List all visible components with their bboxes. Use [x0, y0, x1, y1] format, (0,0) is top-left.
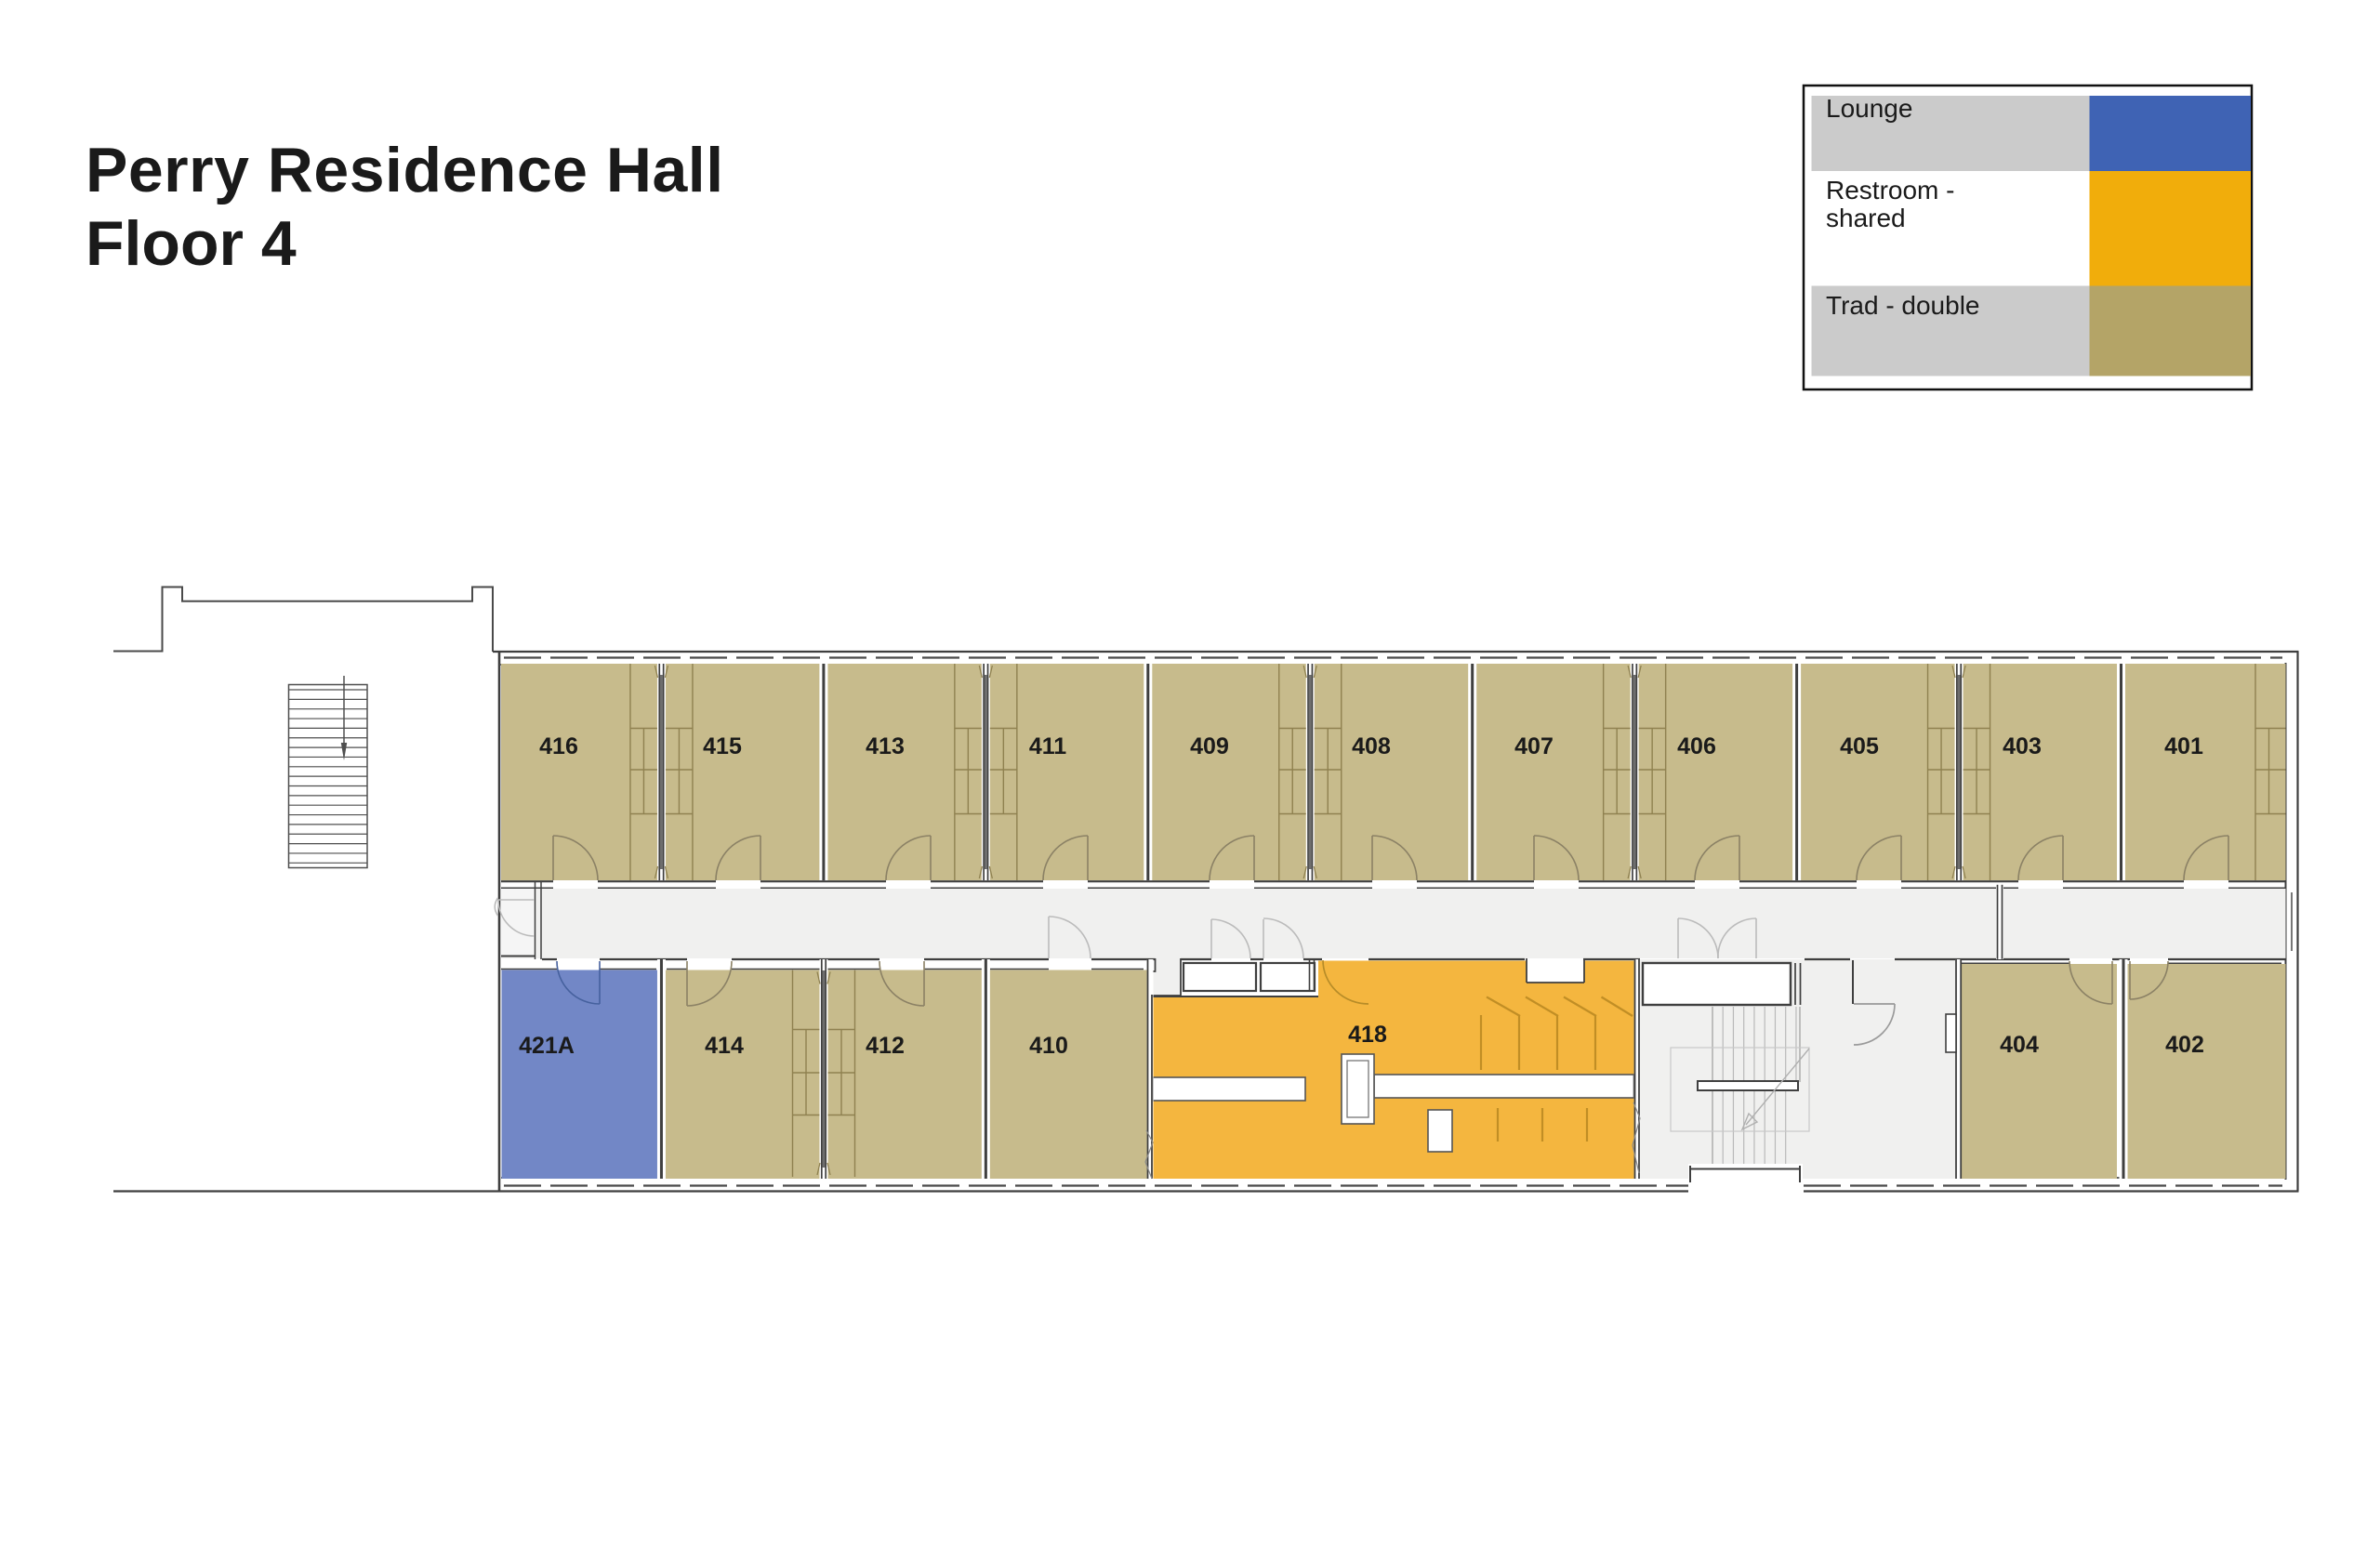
svg-text:Floor 4: Floor 4: [86, 208, 297, 279]
svg-text:412: 412: [866, 1033, 905, 1059]
svg-text:Lounge: Lounge: [1826, 94, 1912, 123]
svg-text:407: 407: [1514, 733, 1554, 759]
svg-text:408: 408: [1352, 733, 1391, 759]
svg-text:Trad - double: Trad - double: [1826, 291, 1980, 320]
svg-text:409: 409: [1190, 733, 1229, 759]
svg-text:shared: shared: [1826, 204, 1906, 232]
svg-text:410: 410: [1029, 1033, 1068, 1059]
svg-text:405: 405: [1840, 733, 1879, 759]
svg-text:413: 413: [866, 733, 905, 759]
svg-text:Perry Residence Hall: Perry Residence Hall: [86, 135, 724, 205]
svg-text:406: 406: [1677, 733, 1716, 759]
svg-text:416: 416: [539, 733, 578, 759]
svg-text:401: 401: [2164, 733, 2203, 759]
svg-text:411: 411: [1029, 733, 1066, 759]
svg-text:414: 414: [705, 1033, 744, 1059]
svg-text:402: 402: [2165, 1032, 2204, 1058]
svg-text:418: 418: [1348, 1022, 1387, 1048]
svg-text:404: 404: [2000, 1032, 2039, 1058]
svg-text:415: 415: [703, 733, 742, 759]
svg-text:Restroom -: Restroom -: [1826, 176, 1954, 205]
svg-text:421A: 421A: [519, 1033, 575, 1059]
svg-text:403: 403: [2003, 733, 2042, 759]
